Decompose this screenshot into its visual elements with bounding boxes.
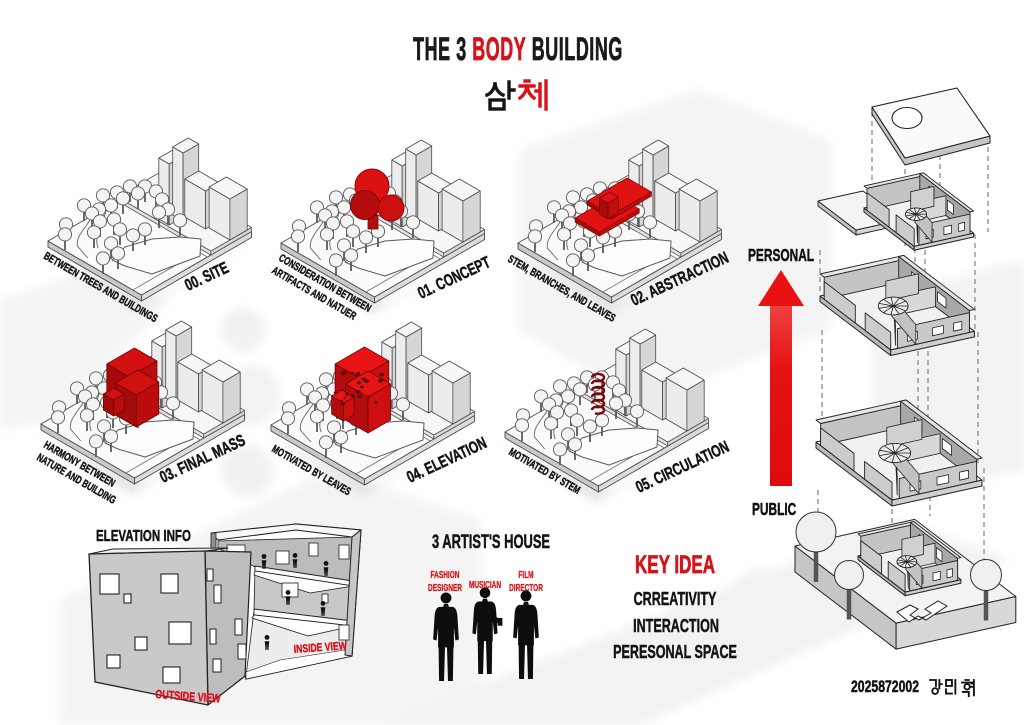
- svg-text:2025872002: 2025872002: [851, 678, 919, 696]
- svg-text:3 ARTIST'S HOUSE: 3 ARTIST'S HOUSE: [432, 532, 550, 553]
- svg-text:INTERACTION: INTERACTION: [633, 617, 719, 637]
- svg-text:FILM: FILM: [518, 568, 533, 580]
- svg-text:KEY IDEA: KEY IDEA: [635, 551, 715, 579]
- svg-text:THE 3 BODY BUILDING: THE 3 BODY BUILDING: [413, 33, 623, 68]
- svg-text:PUBLIC: PUBLIC: [752, 500, 796, 520]
- svg-text:FASHION: FASHION: [431, 568, 460, 580]
- svg-text:PERESONAL SPACE: PERESONAL SPACE: [613, 643, 737, 663]
- svg-text:PERSONAL: PERSONAL: [748, 246, 814, 266]
- svg-text:DESIGNER: DESIGNER: [428, 581, 462, 593]
- svg-text:CRREATIVITY: CRREATIVITY: [634, 590, 717, 610]
- svg-text:ELEVATION INFO: ELEVATION INFO: [96, 526, 191, 544]
